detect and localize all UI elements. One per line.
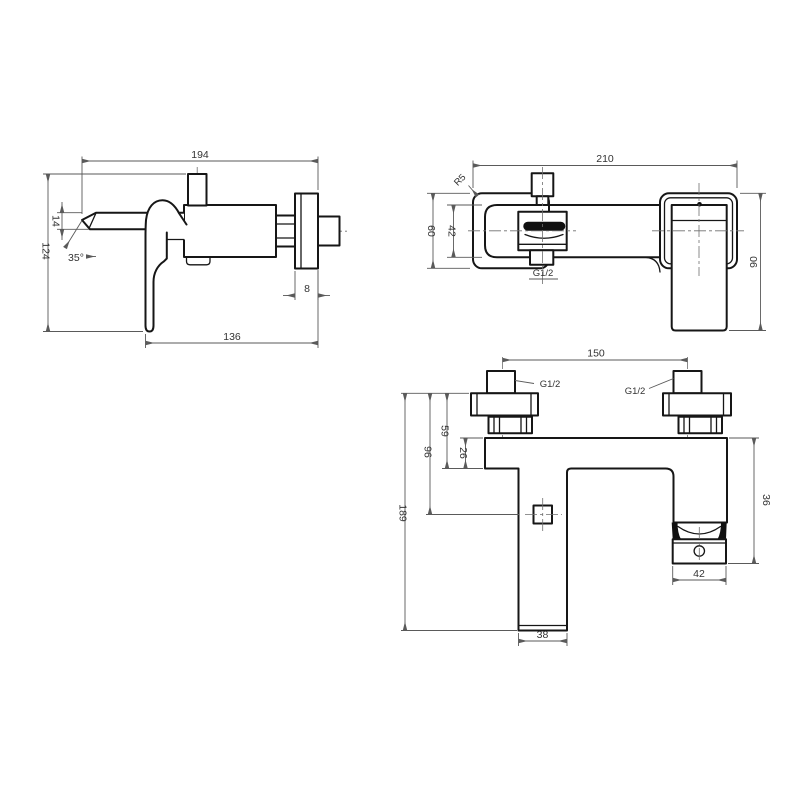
underbody-bracket — [187, 258, 211, 265]
dim-corner-radius: R5 — [452, 172, 468, 188]
dim-flange-to-outlet: 96 — [422, 446, 434, 458]
bottom-view: 150 G1/2 G1/2 59 26 96 189 36 42 — [397, 348, 773, 647]
connector-nut-side — [276, 216, 295, 247]
handle-fill — [146, 200, 187, 325]
dim-inlet-spacing: 150 — [587, 348, 605, 360]
dim-base-thickness: 26 — [457, 447, 469, 459]
dim-overall-height-side: 124 — [40, 242, 52, 260]
inlet-knob-left — [487, 371, 515, 393]
inlet-nut-right — [679, 417, 723, 434]
side-view: 194 14 124 35° 136 8 — [40, 149, 348, 348]
outlet-wing-left — [672, 523, 681, 540]
wall-stub-side — [318, 217, 340, 246]
thread-leader-left — [515, 381, 534, 384]
inlet-flange-left — [471, 393, 538, 415]
arm-fillet-arc — [646, 257, 660, 272]
dim-leg-height: 36 — [760, 494, 772, 506]
dim-overall-width-front: 210 — [596, 153, 614, 165]
front-view: 210 R5 60 42 G1/2 90 — [425, 153, 766, 331]
technical-drawing-canvas: 194 14 124 35° 136 8 — [0, 0, 800, 800]
wall-flange-side — [295, 194, 318, 269]
inlet-flange-right — [663, 393, 731, 415]
mixer-body-side — [184, 205, 276, 257]
inlet-knob-right — [674, 371, 702, 393]
dim-flange-depth: 8 — [304, 283, 310, 295]
dim-handle-angle: 35° — [68, 252, 84, 264]
spout-slot — [523, 222, 565, 231]
dim-handle-height: 90 — [748, 256, 760, 268]
thread-label-front: G1/2 — [533, 268, 554, 279]
diverter-knob-side — [188, 174, 207, 206]
drawing-page: 194 14 124 35° 136 8 — [0, 0, 800, 800]
thread-label-left: G1/2 — [540, 379, 561, 390]
dim-leg-width: 42 — [693, 568, 705, 580]
dim-inner-height: 42 — [446, 225, 458, 237]
outlet-wing-right — [718, 523, 727, 540]
thread-leader-right — [649, 379, 674, 389]
thread-label-right: G1/2 — [625, 386, 646, 397]
dim-flange-to-base: 59 — [439, 425, 451, 437]
dim-spout-width: 38 — [537, 629, 549, 641]
dim-body-width: 136 — [223, 331, 241, 343]
dim-overall-width-side: 194 — [191, 149, 209, 161]
dim-overall-height-bottom: 189 — [397, 504, 409, 522]
pivot-dot — [697, 202, 702, 207]
inlet-nut-left — [489, 417, 533, 434]
angle-leader — [65, 221, 82, 249]
dim-spout-height: 14 — [50, 215, 62, 227]
outlet-stem-front — [530, 250, 553, 264]
mixer-base-body — [485, 438, 727, 631]
dim-body-height: 60 — [425, 225, 437, 237]
